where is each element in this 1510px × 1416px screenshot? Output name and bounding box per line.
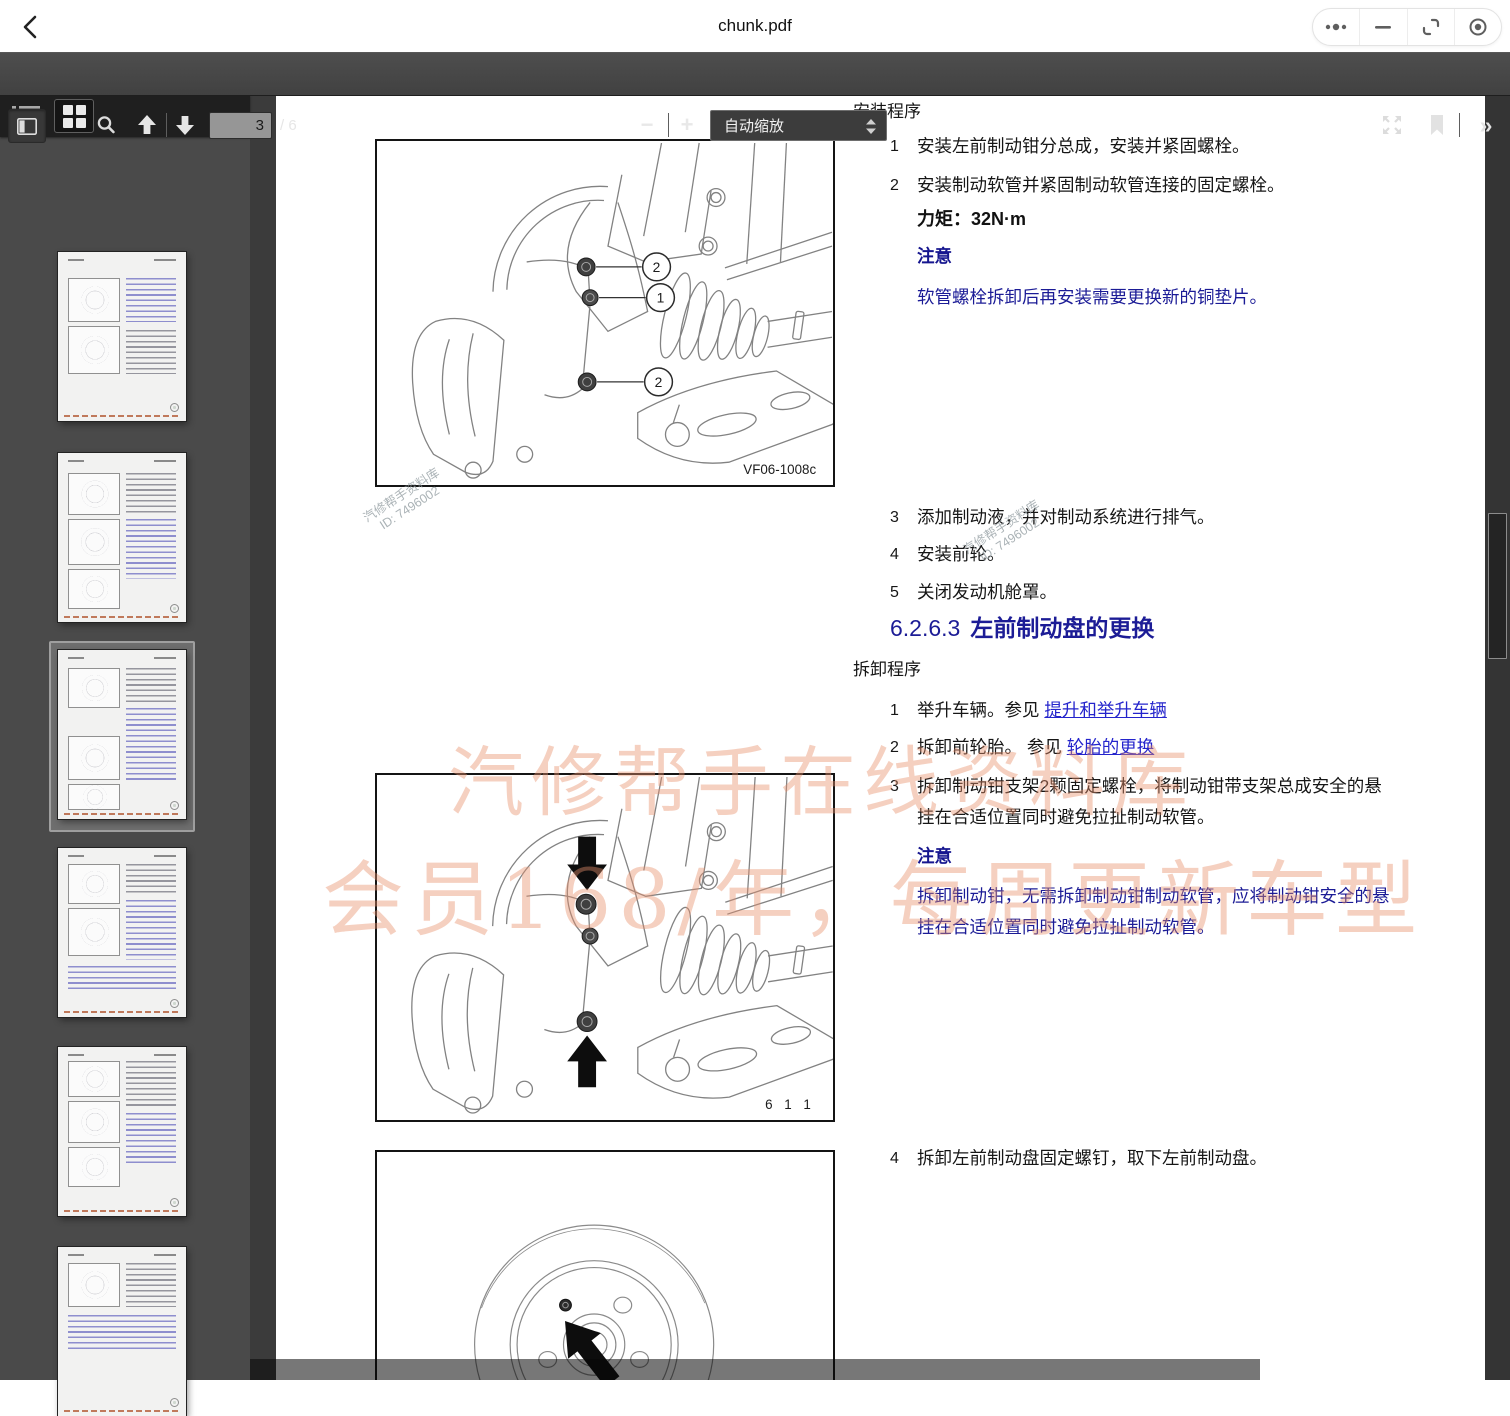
thumbnail-page-5[interactable] xyxy=(58,1047,186,1216)
zoom-mode-select[interactable]: 自动缩放 xyxy=(710,110,887,141)
more-options-icon xyxy=(1324,21,1348,33)
previous-page-button[interactable] xyxy=(133,109,161,141)
thumb-watermark-line xyxy=(64,616,180,619)
step-number: 5 xyxy=(890,577,917,608)
thumb-text-placeholder xyxy=(126,900,176,960)
zoom-in-button[interactable]: + xyxy=(674,109,700,141)
thumb-watermark-line xyxy=(64,813,180,816)
step-text: 拆卸前轮胎。 参见 轮胎的更换 xyxy=(917,732,1393,763)
pdf-viewer-area: 2 1 2 VF06-1008c xyxy=(250,95,1510,1380)
step-text: 添加制动液，并对制动系统进行排气。 xyxy=(917,502,1393,533)
thumb-figure-placeholder xyxy=(68,569,120,609)
double-chevron-icon: » xyxy=(1480,112,1493,139)
zoom-out-button[interactable]: − xyxy=(634,109,660,141)
toolbar-divider xyxy=(166,113,167,137)
thumb-figure-placeholder xyxy=(68,326,120,374)
select-caret-icon xyxy=(865,118,877,135)
thumbnail-page-4[interactable] xyxy=(58,848,186,1017)
thumb-logo xyxy=(170,1398,179,1407)
presentation-mode-button[interactable] xyxy=(1377,109,1407,141)
thumbnails-view-button[interactable] xyxy=(54,99,94,133)
step-number: 3 xyxy=(890,502,917,533)
thumb-text-placeholder xyxy=(68,1315,176,1351)
thumbnail-page-2[interactable] xyxy=(58,453,186,622)
text-column: 安装程序 1安装左前制动钳分总成，安装并紧固螺栓。 2安装制动软管并紧固制动软管… xyxy=(276,95,1485,1380)
bookmark-icon xyxy=(1428,114,1446,136)
thumb-figure-placeholder xyxy=(68,908,120,956)
thumb-logo xyxy=(170,999,179,1008)
thumb-figure-placeholder xyxy=(68,784,120,810)
link-lift-vehicle[interactable]: 提升和举升车辆 xyxy=(1044,700,1167,720)
install-step-4: 4安装前轮。 xyxy=(890,539,1395,570)
thumb-text-placeholder xyxy=(126,668,176,702)
removal-procedure-header: 拆卸程序 xyxy=(853,655,921,680)
toolbar-divider xyxy=(1459,113,1460,137)
record-indicator-button[interactable] xyxy=(1454,9,1501,45)
note-label: 注意 xyxy=(917,243,952,268)
step-pre-text: 拆卸前轮胎。 参见 xyxy=(917,737,1067,757)
thumb-figure-placeholder xyxy=(68,736,120,780)
horizontal-scrollbar-thumb[interactable] xyxy=(250,1359,1260,1380)
link-tire-replacement[interactable]: 轮胎的更换 xyxy=(1067,737,1155,757)
zoom-out-icon: − xyxy=(641,114,654,136)
thumb-figure-placeholder xyxy=(68,1263,120,1307)
more-options-button[interactable] xyxy=(1313,9,1359,45)
restore-window-icon xyxy=(1421,17,1441,37)
thumb-figure-placeholder xyxy=(68,1101,120,1143)
next-page-button[interactable] xyxy=(171,109,199,141)
thumb-figure-placeholder xyxy=(68,1147,120,1187)
thumb-text-placeholder xyxy=(126,1113,176,1165)
window-capsule-controls xyxy=(1312,8,1502,46)
install-step-2: 2安装制动软管并紧固制动软管连接的固定螺栓。 xyxy=(890,170,1395,201)
toolbar-more-button[interactable]: » xyxy=(1468,109,1504,141)
thumb-watermark-line xyxy=(64,1011,180,1014)
thumbnail-page-6[interactable] xyxy=(58,1247,186,1416)
record-indicator-icon xyxy=(1468,17,1488,37)
thumb-text-placeholder xyxy=(126,708,176,780)
thumb-figure-placeholder xyxy=(68,519,120,565)
step-pre-text: 举升车辆。参见 xyxy=(917,700,1044,720)
thumb-header-placeholder xyxy=(68,259,176,261)
removal-step-1: 1举升车辆。参见 提升和举升车辆 xyxy=(890,695,1395,726)
step-number: 2 xyxy=(890,732,917,763)
page-number-input[interactable] xyxy=(209,112,272,139)
step-number: 1 xyxy=(890,131,917,162)
thumb-figure-placeholder xyxy=(68,278,120,322)
minimize-button[interactable] xyxy=(1359,9,1406,45)
thumb-logo xyxy=(170,403,179,412)
note-text: 拆卸制动钳，无需拆卸制动钳制动软管，应将制动钳安全的悬挂在合适位置同时避免拉扯制… xyxy=(917,881,1393,943)
bookmark-button[interactable] xyxy=(1424,109,1450,141)
restore-window-button[interactable] xyxy=(1407,9,1454,45)
step-number: 4 xyxy=(890,1143,917,1174)
document-title: chunk.pdf xyxy=(0,0,1510,52)
install-step-1: 1安装左前制动钳分总成，安装并紧固螺栓。 xyxy=(890,131,1395,162)
thumb-logo xyxy=(170,801,179,810)
thumbnails-view-icon xyxy=(63,105,86,128)
thumb-text-placeholder xyxy=(126,278,176,322)
page-down-icon xyxy=(173,113,197,137)
vertical-scrollbar-thumb[interactable] xyxy=(1488,513,1507,659)
step-text: 拆卸制动钳支架2颗固定螺栓，将制动钳带支架总成安全的悬挂在合适位置同时避免拉扯制… xyxy=(917,771,1393,833)
page-total-label: / 6 xyxy=(280,104,297,147)
thumb-logo xyxy=(170,1198,179,1207)
vertical-scrollbar-track[interactable] xyxy=(1485,95,1510,1380)
thumb-text-placeholder xyxy=(126,519,176,579)
thumbnail-page-1[interactable] xyxy=(58,252,186,421)
search-button[interactable] xyxy=(92,109,120,141)
sidebar-toggle-button[interactable] xyxy=(8,109,46,143)
thumb-watermark-line xyxy=(64,1410,180,1413)
thumb-text-placeholder xyxy=(126,1061,176,1107)
zoom-in-icon: + xyxy=(681,114,694,136)
thumb-text-placeholder xyxy=(126,473,176,513)
thumb-text-placeholder xyxy=(126,1263,176,1307)
pdf-page-3: 2 1 2 VF06-1008c xyxy=(276,95,1485,1380)
removal-step-2: 2拆卸前轮胎。 参见 轮胎的更换 xyxy=(890,732,1395,763)
step-text: 安装制动软管并紧固制动软管连接的固定螺栓。 xyxy=(917,170,1393,201)
thumb-figure-placeholder xyxy=(68,864,120,904)
thumb-header-placeholder xyxy=(68,1054,176,1056)
step-text: 安装前轮。 xyxy=(917,539,1393,570)
thumb-header-placeholder xyxy=(68,460,176,462)
thumb-figure-placeholder xyxy=(68,1061,120,1097)
install-step-3: 3添加制动液，并对制动系统进行排气。 xyxy=(890,502,1395,533)
thumbnail-sidebar xyxy=(0,95,250,1380)
note-label: 注意 xyxy=(917,843,952,868)
step-text: 关闭发动机舱罩。 xyxy=(917,577,1393,608)
step-text: 拆卸左前制动盘固定螺钉，取下左前制动盘。 xyxy=(917,1143,1393,1174)
sidebar-toggle-icon xyxy=(17,118,37,135)
thumb-text-placeholder xyxy=(126,864,176,894)
step-number: 2 xyxy=(890,170,917,201)
pdf-toolbar: / 6 − + 自动缩放 » xyxy=(0,52,1510,95)
step-text: 安装左前制动钳分总成，安装并紧固螺栓。 xyxy=(917,131,1393,162)
thumb-text-placeholder xyxy=(68,966,176,990)
thumb-figure-placeholder xyxy=(68,473,120,515)
thumb-text-placeholder xyxy=(126,330,176,374)
removal-step-3: 3拆卸制动钳支架2颗固定螺栓，将制动钳带支架总成安全的悬挂在合适位置同时避免拉扯… xyxy=(890,771,1395,833)
step-number: 4 xyxy=(890,539,917,570)
step-text: 举升车辆。参见 提升和举升车辆 xyxy=(917,695,1393,726)
thumb-watermark-line xyxy=(64,415,180,418)
step-number: 3 xyxy=(890,771,917,802)
thumb-header-placeholder xyxy=(68,855,176,857)
toolbar-divider xyxy=(668,113,669,137)
note-text: 软管螺栓拆卸后再安装需要更换新的铜垫片。 xyxy=(917,282,1393,313)
zoom-mode-label: 自动缩放 xyxy=(724,115,784,136)
page-up-icon xyxy=(135,113,159,137)
title-bar: chunk.pdf xyxy=(0,0,1510,52)
thumb-header-placeholder xyxy=(68,657,176,659)
thumb-logo xyxy=(170,604,179,613)
step-number: 1 xyxy=(890,695,917,726)
section-heading: 6.2.6.3左前制动盘的更换 xyxy=(890,609,1154,643)
thumb-header-placeholder xyxy=(68,1254,176,1256)
section-title: 左前制动盘的更换 xyxy=(970,615,1154,641)
fullscreen-icon xyxy=(1380,113,1404,137)
minimize-icon xyxy=(1374,24,1392,30)
install-step-5: 5关闭发动机舱罩。 xyxy=(890,577,1395,608)
thumbnail-page-3-active[interactable] xyxy=(58,650,186,819)
search-icon xyxy=(95,114,117,136)
thumb-figure-placeholder xyxy=(68,668,120,708)
section-number: 6.2.6.3 xyxy=(890,615,960,641)
torque-spec: 力矩：32N·m xyxy=(917,205,1026,231)
thumb-watermark-line xyxy=(64,1210,180,1213)
removal-step-4: 4拆卸左前制动盘固定螺钉，取下左前制动盘。 xyxy=(890,1143,1395,1174)
